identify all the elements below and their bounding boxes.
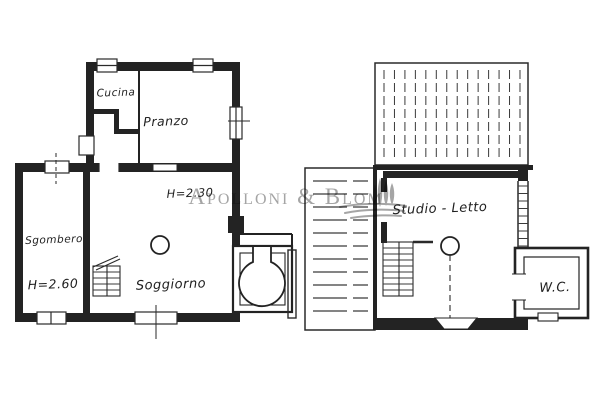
window-icon	[193, 59, 213, 72]
roof-hatch	[375, 63, 528, 165]
window-icon	[97, 59, 117, 72]
dark-window-icon	[228, 216, 244, 233]
column-icon	[441, 237, 459, 255]
room-label-sgombero: Sgombero	[25, 233, 83, 247]
staircase-icon	[93, 256, 120, 296]
room-label-soggiorno: Soggiorno	[136, 276, 207, 293]
window-icon	[538, 313, 558, 321]
window-icon	[37, 312, 66, 324]
door-opening	[99, 163, 119, 172]
window-icon	[153, 164, 177, 171]
staircase-icon	[383, 242, 433, 296]
glazed-wall-icon	[518, 181, 528, 250]
window-icon	[228, 107, 250, 139]
window-icon	[45, 153, 69, 184]
column-icon	[151, 236, 169, 254]
door-opening	[512, 274, 526, 300]
room-label-pranzo: Pranzo	[143, 113, 189, 130]
window-icon	[135, 305, 177, 339]
roof-hatch-lines	[384, 70, 520, 158]
height-annotation-soggiorno: H=2.30	[166, 185, 213, 201]
oven-icon	[233, 234, 292, 312]
kitchen-jog-wall	[94, 109, 139, 134]
floorplan-page: Apolloni & Blom Cucina Pranzo Sgombero S…	[0, 0, 600, 400]
height-annotation-sgombero: H=2.60	[27, 276, 78, 293]
stair-treads-right	[383, 248, 413, 290]
room-label-cucina: Cucina	[96, 86, 135, 99]
door-icon	[79, 136, 94, 155]
room-label-wc: W.C.	[539, 280, 571, 296]
ladder-rungs	[518, 186, 528, 246]
